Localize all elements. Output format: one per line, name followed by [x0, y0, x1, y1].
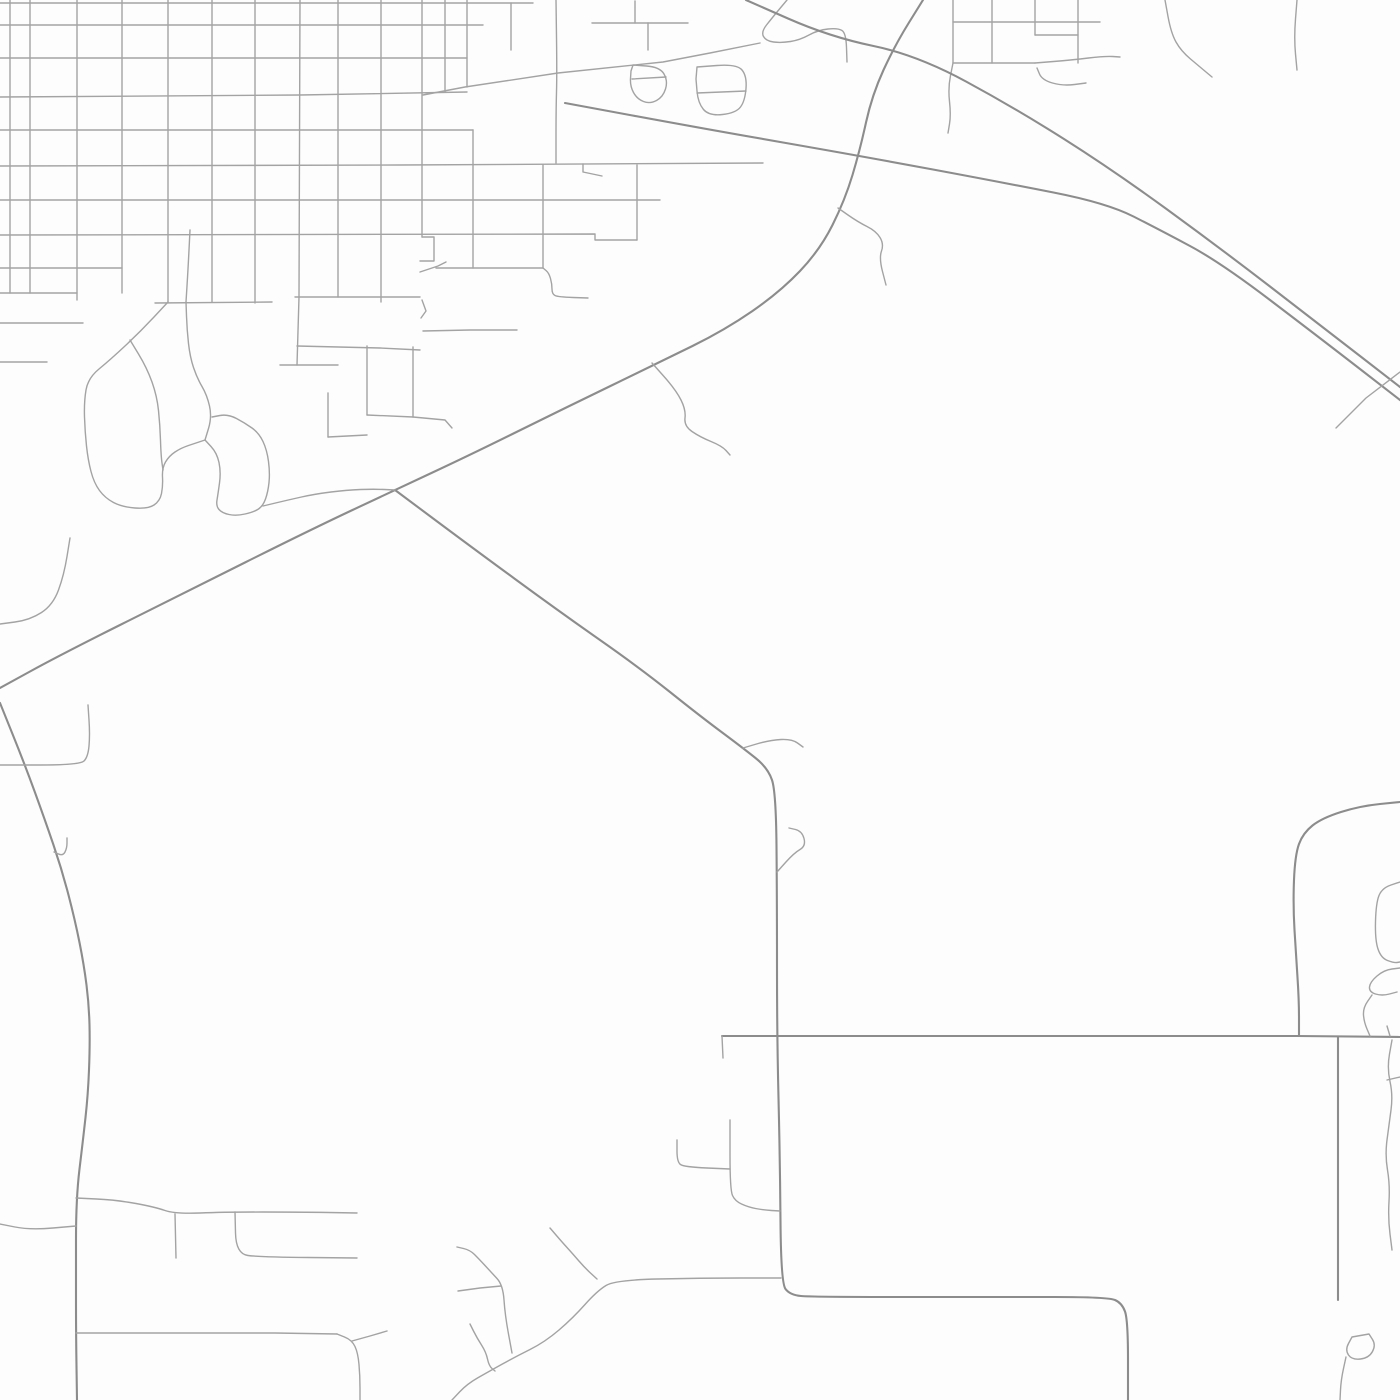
road-sd-v186: [186, 230, 190, 302]
road-bc-lane-2: [677, 1140, 730, 1169]
road-block-1: [630, 65, 666, 103]
road-rail-line: [746, 0, 1400, 387]
road-re-tail: [1363, 995, 1372, 1036]
road-re-loop: [1369, 968, 1400, 995]
road-highway-b: [565, 103, 1400, 400]
road-bc-branch-e: [550, 1228, 597, 1279]
road-hook-mid: [583, 164, 602, 176]
road-block-1-divider: [632, 77, 666, 79]
road-loop-spur: [743, 739, 803, 748]
road-re-tail-2: [1340, 1357, 1346, 1400]
road-grid-h8: [0, 234, 637, 240]
road-map: [0, 0, 1400, 1400]
road-sd-h420: [413, 417, 452, 428]
road-pennant-spur: [777, 828, 805, 872]
road-grid-h4: [0, 92, 467, 97]
road-arc-squiggle-1: [838, 208, 886, 285]
road-sd-inner: [130, 340, 163, 470]
road-loop-road-main: [395, 490, 1128, 1400]
road-left-spur-852: [54, 838, 67, 855]
road-re-bay: [1375, 882, 1400, 963]
road-grid-stub-rect: [420, 237, 434, 261]
road-sd-h346: [297, 346, 420, 350]
road-tr-lane-1: [1165, 0, 1212, 77]
road-sd-street-490: [263, 489, 395, 506]
road-sd-lobe2-loop: [205, 415, 269, 515]
road-re-tick: [1387, 1026, 1390, 1036]
road-block-2-divider: [697, 91, 746, 93]
road-bl-road-1198: [76, 1198, 357, 1213]
road-grid-h9c: [543, 268, 588, 298]
road-bc-squiggle: [470, 1324, 495, 1371]
road-tr-hook: [1037, 68, 1086, 85]
map-canvas[interactable]: [0, 0, 1400, 1400]
road-block-2: [696, 65, 746, 115]
road-sd-h435: [328, 435, 367, 437]
road-squiggle-top: [763, 0, 847, 62]
road-sd-h331: [423, 330, 517, 331]
road-bl-corner: [337, 1334, 360, 1400]
road-tr-lane-2: [1295, 0, 1297, 70]
road-tick-722: [722, 1036, 723, 1058]
road-bc-lane-1: [730, 1120, 780, 1211]
road-bl-stub-175: [175, 1214, 176, 1258]
road-grid-v8: [297, 0, 300, 365]
road-bl-road-1333: [76, 1333, 337, 1334]
road-left-road: [0, 703, 90, 1400]
road-grid-spur-2: [421, 300, 426, 318]
road-bl-branch: [352, 1331, 387, 1341]
road-diagonal-a: [423, 43, 760, 95]
road-bl-stub-235: [235, 1212, 357, 1258]
road-grid-h11: [155, 302, 272, 303]
road-re-corner-road: [1294, 802, 1400, 1036]
road-arc-squiggle-2: [652, 363, 730, 455]
road-sd-h416: [367, 415, 413, 417]
road-grid-v15: [556, 0, 557, 163]
road-bc-branch-v: [457, 1247, 512, 1353]
road-re-wavy: [1386, 1040, 1392, 1250]
road-arc-road: [0, 0, 923, 688]
road-bl-road-1224: [0, 1224, 76, 1229]
road-bc-cross: [458, 1286, 501, 1291]
road-grid-spur-1: [420, 262, 446, 272]
road-re-loop-2: [1347, 1334, 1375, 1359]
road-sd-lobe2-up: [186, 302, 211, 440]
road-left-wavy: [0, 538, 70, 624]
road-bc-sweep: [452, 1278, 781, 1400]
